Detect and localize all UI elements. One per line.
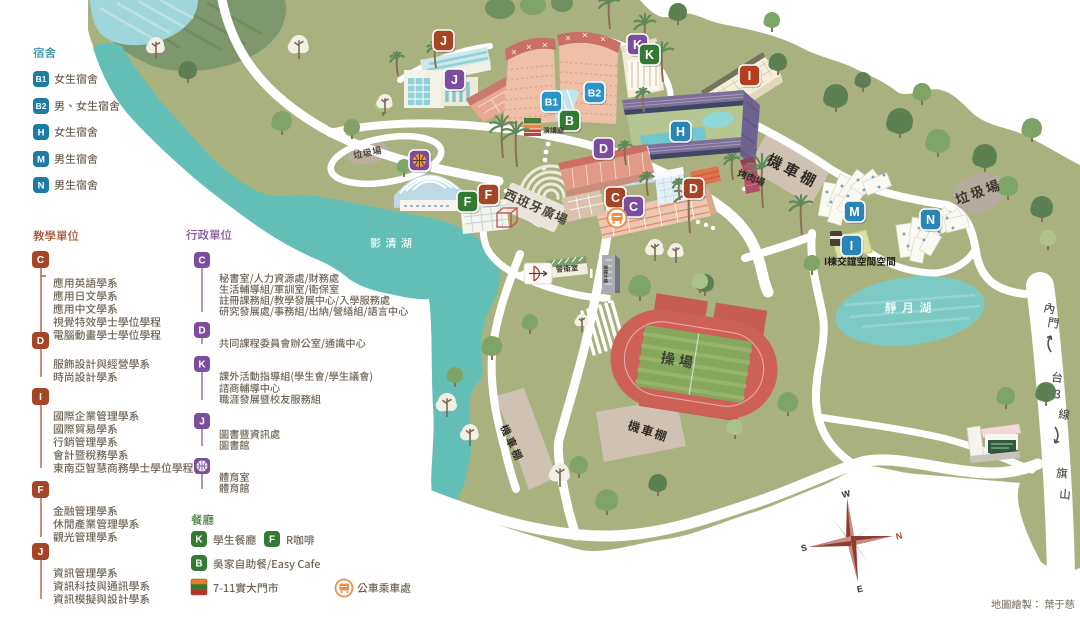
svg-text:D: D xyxy=(689,182,698,196)
svg-text:D: D xyxy=(37,336,44,347)
svg-text:D: D xyxy=(599,142,608,156)
svg-text:F: F xyxy=(37,485,43,496)
svg-text:B2: B2 xyxy=(588,87,602,99)
svg-text:F: F xyxy=(464,195,472,209)
svg-text:I: I xyxy=(748,69,751,83)
svg-text:D: D xyxy=(198,326,205,337)
svg-text:B1: B1 xyxy=(36,74,47,84)
svg-text:J: J xyxy=(199,417,205,428)
svg-text:I: I xyxy=(39,392,42,403)
svg-text:C: C xyxy=(198,256,205,267)
svg-text:H: H xyxy=(676,125,685,139)
svg-text:B: B xyxy=(565,114,574,128)
svg-text:C: C xyxy=(611,191,620,205)
svg-text:M: M xyxy=(849,205,859,219)
svg-text:C: C xyxy=(629,200,638,214)
svg-text:K: K xyxy=(198,360,206,371)
svg-text:J: J xyxy=(38,547,44,558)
svg-text:K: K xyxy=(195,535,203,546)
svg-text:F: F xyxy=(269,535,275,546)
svg-text:C: C xyxy=(37,255,44,266)
svg-text:B2: B2 xyxy=(36,101,47,111)
svg-text:H: H xyxy=(38,127,45,138)
svg-text:N: N xyxy=(926,213,935,227)
svg-text:I: I xyxy=(850,239,853,253)
svg-text:N: N xyxy=(38,180,45,191)
svg-text:M: M xyxy=(37,154,45,165)
svg-text:B: B xyxy=(195,559,202,570)
svg-text:K: K xyxy=(645,48,654,62)
svg-text:J: J xyxy=(451,73,458,87)
svg-text:B1: B1 xyxy=(545,96,559,108)
svg-text:J: J xyxy=(440,34,447,48)
svg-text:F: F xyxy=(485,188,493,202)
